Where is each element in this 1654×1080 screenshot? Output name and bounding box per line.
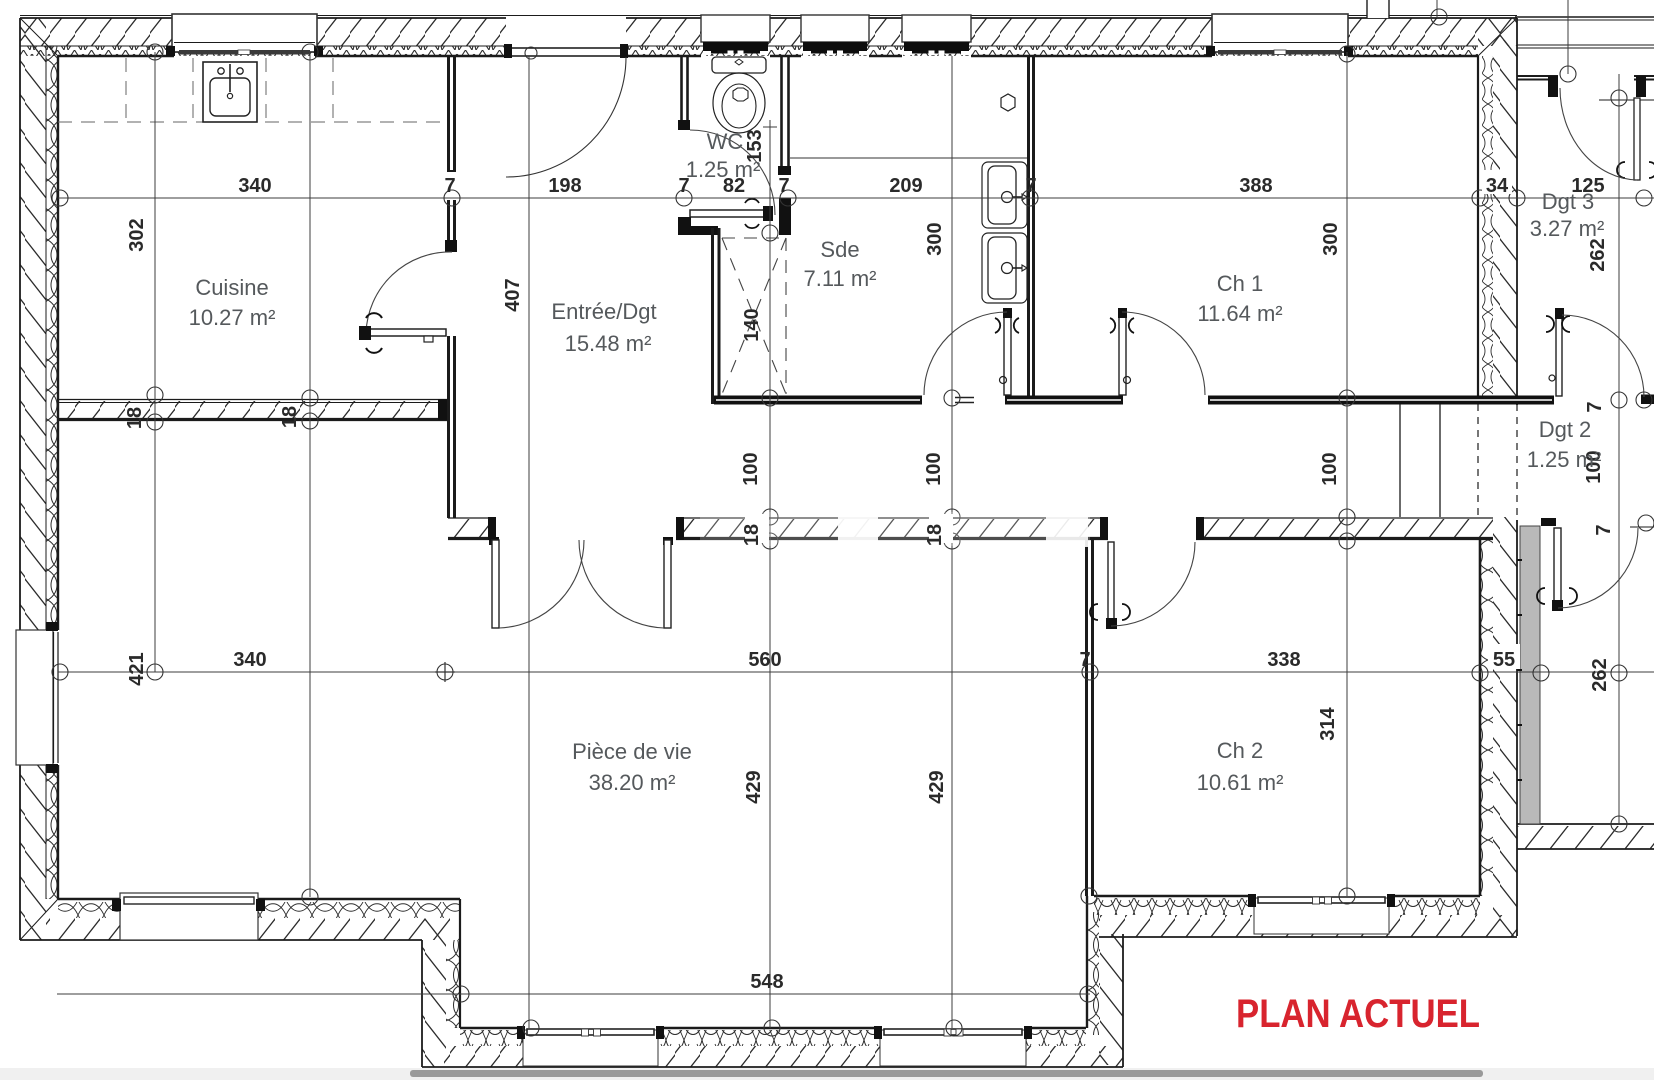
svg-text:Dgt 2: Dgt 2 [1539, 417, 1592, 442]
svg-text:Ch 2: Ch 2 [1217, 738, 1263, 763]
svg-text:300: 300 [1320, 222, 1342, 255]
svg-text:7: 7 [1584, 401, 1606, 412]
svg-text:Sde: Sde [820, 237, 859, 262]
svg-text:Cuisine: Cuisine [195, 275, 268, 300]
svg-text:18: 18 [924, 524, 946, 546]
svg-text:10.61 m²: 10.61 m² [1197, 770, 1284, 795]
svg-text:388: 388 [1239, 175, 1272, 197]
svg-text:18: 18 [124, 407, 146, 429]
svg-text:340: 340 [233, 649, 266, 671]
svg-text:18: 18 [741, 524, 763, 546]
svg-text:198: 198 [548, 175, 581, 197]
svg-text:140: 140 [741, 308, 763, 341]
svg-text:100: 100 [740, 452, 762, 485]
svg-text:10.27 m²: 10.27 m² [189, 305, 276, 330]
svg-text:340: 340 [238, 175, 271, 197]
svg-text:548: 548 [750, 971, 783, 993]
svg-text:262: 262 [1587, 238, 1609, 271]
svg-text:429: 429 [926, 770, 948, 803]
svg-text:314: 314 [1317, 706, 1339, 740]
svg-text:302: 302 [126, 218, 148, 251]
svg-text:Entrée/Dgt: Entrée/Dgt [551, 299, 656, 324]
svg-text:7: 7 [778, 175, 789, 197]
svg-text:1.25 m²: 1.25 m² [1527, 447, 1602, 472]
svg-text:38.20 m²: 38.20 m² [589, 770, 676, 795]
svg-text:Ch 1: Ch 1 [1217, 271, 1263, 296]
svg-text:34: 34 [1486, 175, 1509, 197]
svg-text:209: 209 [889, 175, 922, 197]
svg-text:1.25 m²: 1.25 m² [686, 157, 761, 182]
svg-text:Dgt 3: Dgt 3 [1542, 189, 1595, 214]
svg-text:100: 100 [1319, 452, 1341, 485]
svg-text:7: 7 [1079, 649, 1090, 671]
svg-text:407: 407 [502, 278, 524, 311]
svg-text:PLAN ACTUEL: PLAN ACTUEL [1236, 992, 1480, 1036]
svg-text:100: 100 [923, 452, 945, 485]
svg-text:55: 55 [1493, 649, 1515, 671]
svg-text:18: 18 [279, 406, 301, 428]
svg-text:7.11 m²: 7.11 m² [804, 266, 877, 291]
svg-text:WC: WC [707, 129, 744, 154]
svg-text:15.48 m²: 15.48 m² [565, 331, 652, 356]
svg-text:7: 7 [444, 175, 455, 197]
svg-text:7: 7 [1025, 175, 1036, 197]
svg-text:3.27 m²: 3.27 m² [1530, 216, 1605, 241]
svg-text:300: 300 [924, 222, 946, 255]
svg-text:421: 421 [126, 652, 148, 685]
svg-text:11.64 m²: 11.64 m² [1197, 301, 1282, 326]
svg-text:429: 429 [743, 770, 765, 803]
svg-text:7: 7 [1593, 524, 1615, 535]
svg-text:560: 560 [748, 649, 781, 671]
svg-text:262: 262 [1589, 658, 1611, 691]
svg-text:338: 338 [1267, 649, 1300, 671]
svg-text:Pièce de vie: Pièce de vie [572, 739, 692, 764]
